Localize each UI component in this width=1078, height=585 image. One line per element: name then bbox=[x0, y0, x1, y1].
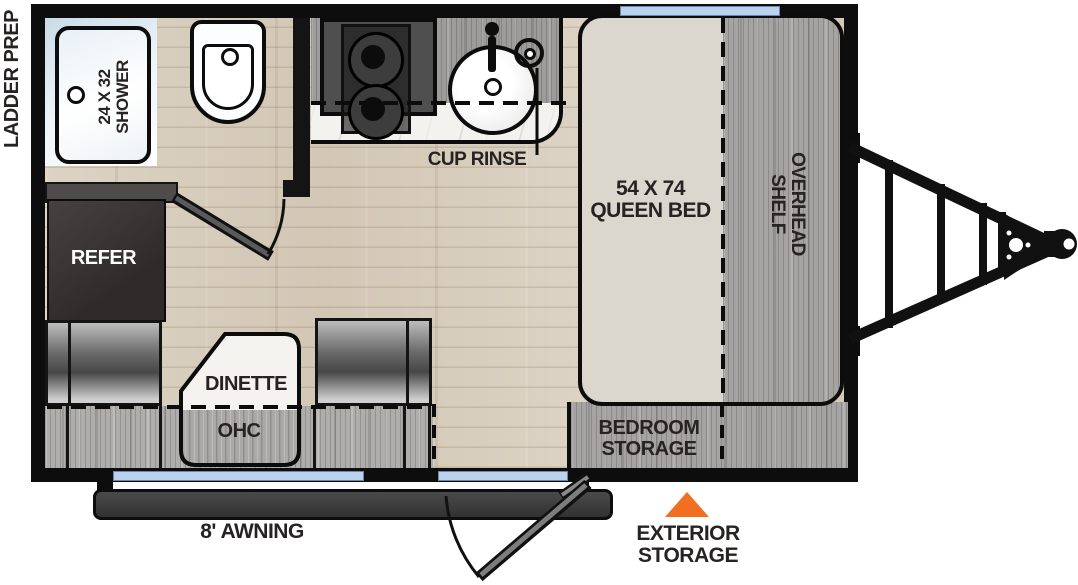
entry-door-swing-arc bbox=[446, 496, 479, 577]
shower-label: 24 X 32 SHOWER bbox=[96, 52, 134, 142]
bathroom-door-panel-face bbox=[176, 198, 269, 255]
tongue-jack-hole bbox=[1009, 238, 1023, 252]
overhead-shelf-label: OVERHEAD SHELF bbox=[767, 144, 807, 264]
cup-rinse-label: CUP RINSE bbox=[387, 150, 567, 170]
entry-door-panel-face bbox=[481, 485, 586, 575]
ladder-prep-label: LADDER PREP bbox=[2, 4, 24, 154]
bedroom-storage-label: BEDROOM STORAGE bbox=[579, 418, 719, 460]
awning-label: 8' AWNING bbox=[152, 521, 352, 543]
trailer-tongue bbox=[844, 133, 1077, 356]
hitch-coupler-socket bbox=[1064, 239, 1075, 250]
ohc-label: OHC bbox=[179, 421, 299, 442]
dinette-label: DINETTE bbox=[181, 374, 311, 395]
overlay-graphics bbox=[0, 0, 1078, 585]
refer-label: REFER bbox=[45, 248, 162, 269]
floorplan-canvas: LADDER PREP 24 X 32 SHOWER CUP RINSE 54 … bbox=[0, 0, 1078, 585]
dinette-table-top bbox=[181, 334, 299, 410]
bathroom-door-swing-arc bbox=[268, 199, 284, 254]
exterior-storage-label: EXTERIOR STORAGE bbox=[608, 523, 768, 567]
queen-bed-label: 54 X 74 QUEEN BED bbox=[578, 178, 723, 222]
